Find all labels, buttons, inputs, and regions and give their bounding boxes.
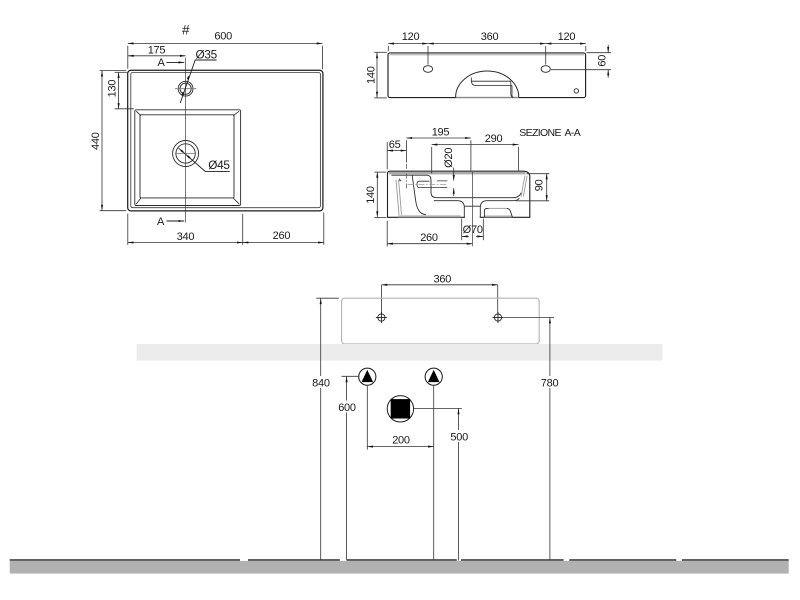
svg-text:840: 840 [312, 378, 330, 390]
svg-text:A: A [157, 57, 165, 69]
svg-text:130: 130 [106, 80, 118, 98]
svg-text:Ø70: Ø70 [463, 224, 483, 236]
svg-text:780: 780 [541, 378, 559, 390]
svg-text:120: 120 [558, 31, 576, 43]
svg-text:Ø20: Ø20 [443, 148, 455, 168]
svg-text:340: 340 [177, 231, 195, 243]
svg-text:260: 260 [273, 230, 291, 242]
svg-text:60: 60 [596, 55, 608, 67]
svg-text:Ø35: Ø35 [195, 48, 217, 62]
svg-text:175: 175 [148, 45, 166, 57]
svg-text:120: 120 [402, 31, 420, 43]
svg-text:260: 260 [420, 232, 438, 244]
svg-text:140: 140 [366, 66, 378, 84]
svg-text:195: 195 [432, 127, 450, 139]
svg-text:600: 600 [214, 31, 232, 43]
svg-text:65: 65 [389, 139, 401, 151]
svg-text:200: 200 [392, 434, 410, 446]
svg-text:SEZIONE A-A: SEZIONE A-A [519, 127, 580, 139]
svg-text:440: 440 [90, 132, 102, 150]
svg-text:90: 90 [533, 179, 545, 191]
svg-text:140: 140 [365, 186, 377, 204]
svg-text:290: 290 [485, 133, 503, 145]
svg-text:500: 500 [450, 431, 468, 443]
svg-text:#: # [182, 22, 190, 37]
svg-text:360: 360 [481, 31, 499, 43]
svg-text:360: 360 [433, 274, 451, 286]
svg-text:Ø45: Ø45 [208, 158, 230, 172]
svg-text:A: A [157, 216, 165, 228]
svg-text:600: 600 [338, 402, 356, 414]
